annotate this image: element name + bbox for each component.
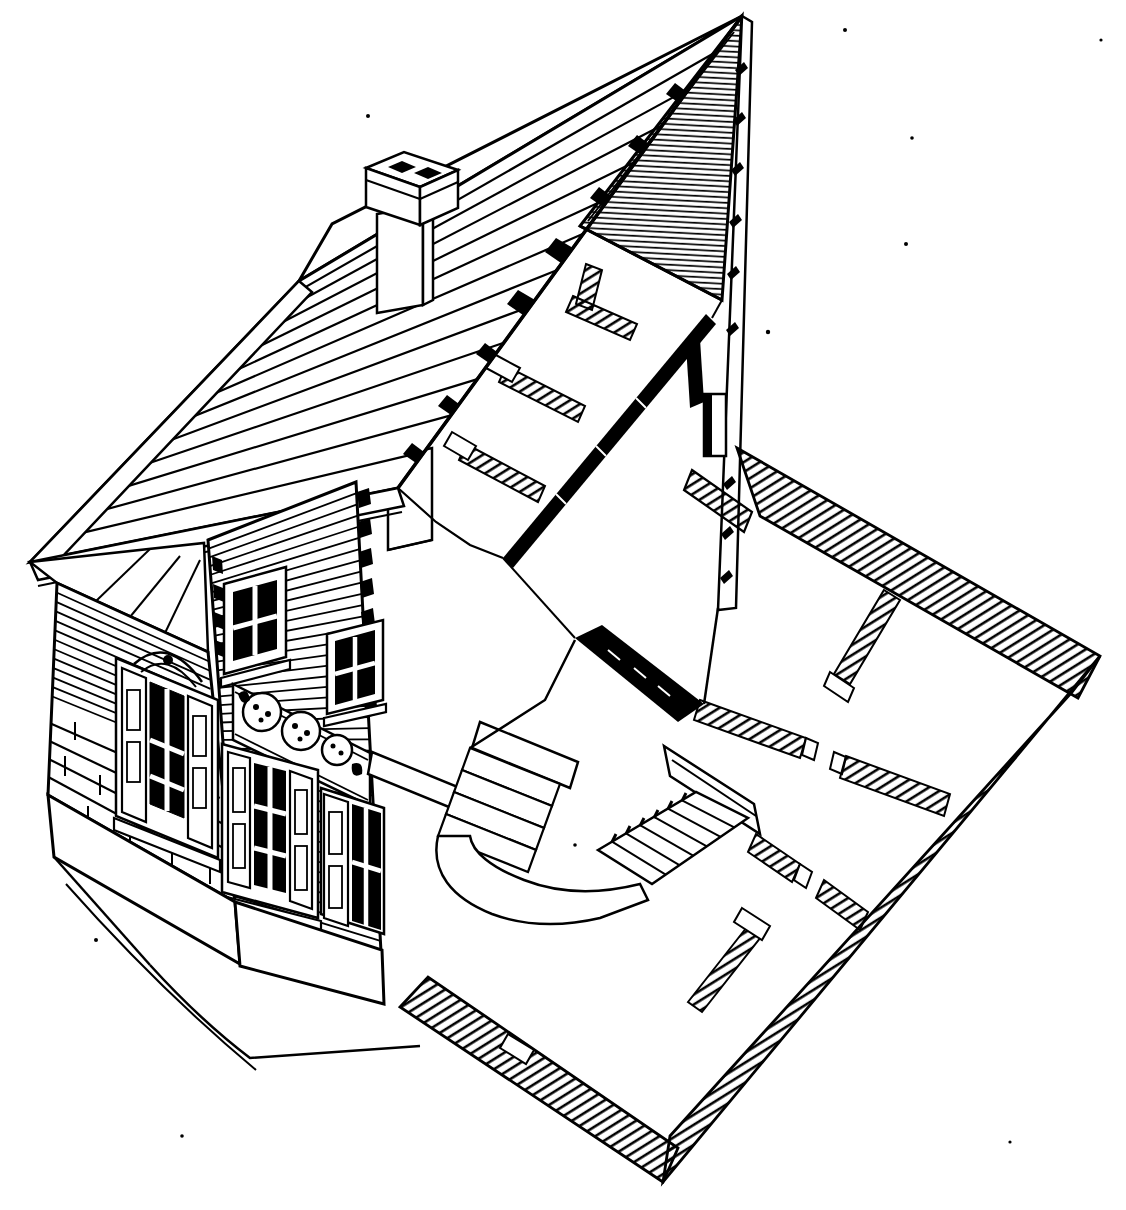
outer-wall-sw bbox=[400, 977, 678, 1182]
outer-wall-se bbox=[663, 656, 1100, 1182]
entry bbox=[368, 722, 648, 924]
attic-floor-shadow-edge bbox=[503, 314, 716, 568]
figure-canvas bbox=[0, 0, 1126, 1210]
stair-block bbox=[598, 792, 748, 884]
cut-window-jamb bbox=[686, 339, 704, 408]
outer-wall-connector bbox=[684, 470, 752, 532]
outer-wall-ne bbox=[737, 448, 1100, 698]
door-jamb bbox=[444, 432, 476, 460]
lower-right-window bbox=[321, 788, 384, 934]
front-facade bbox=[208, 482, 386, 952]
door-jamb bbox=[802, 738, 818, 760]
upper-right-window bbox=[324, 620, 386, 726]
upper-left-window bbox=[221, 567, 290, 687]
cutaway-house-drawing bbox=[0, 0, 1126, 1210]
